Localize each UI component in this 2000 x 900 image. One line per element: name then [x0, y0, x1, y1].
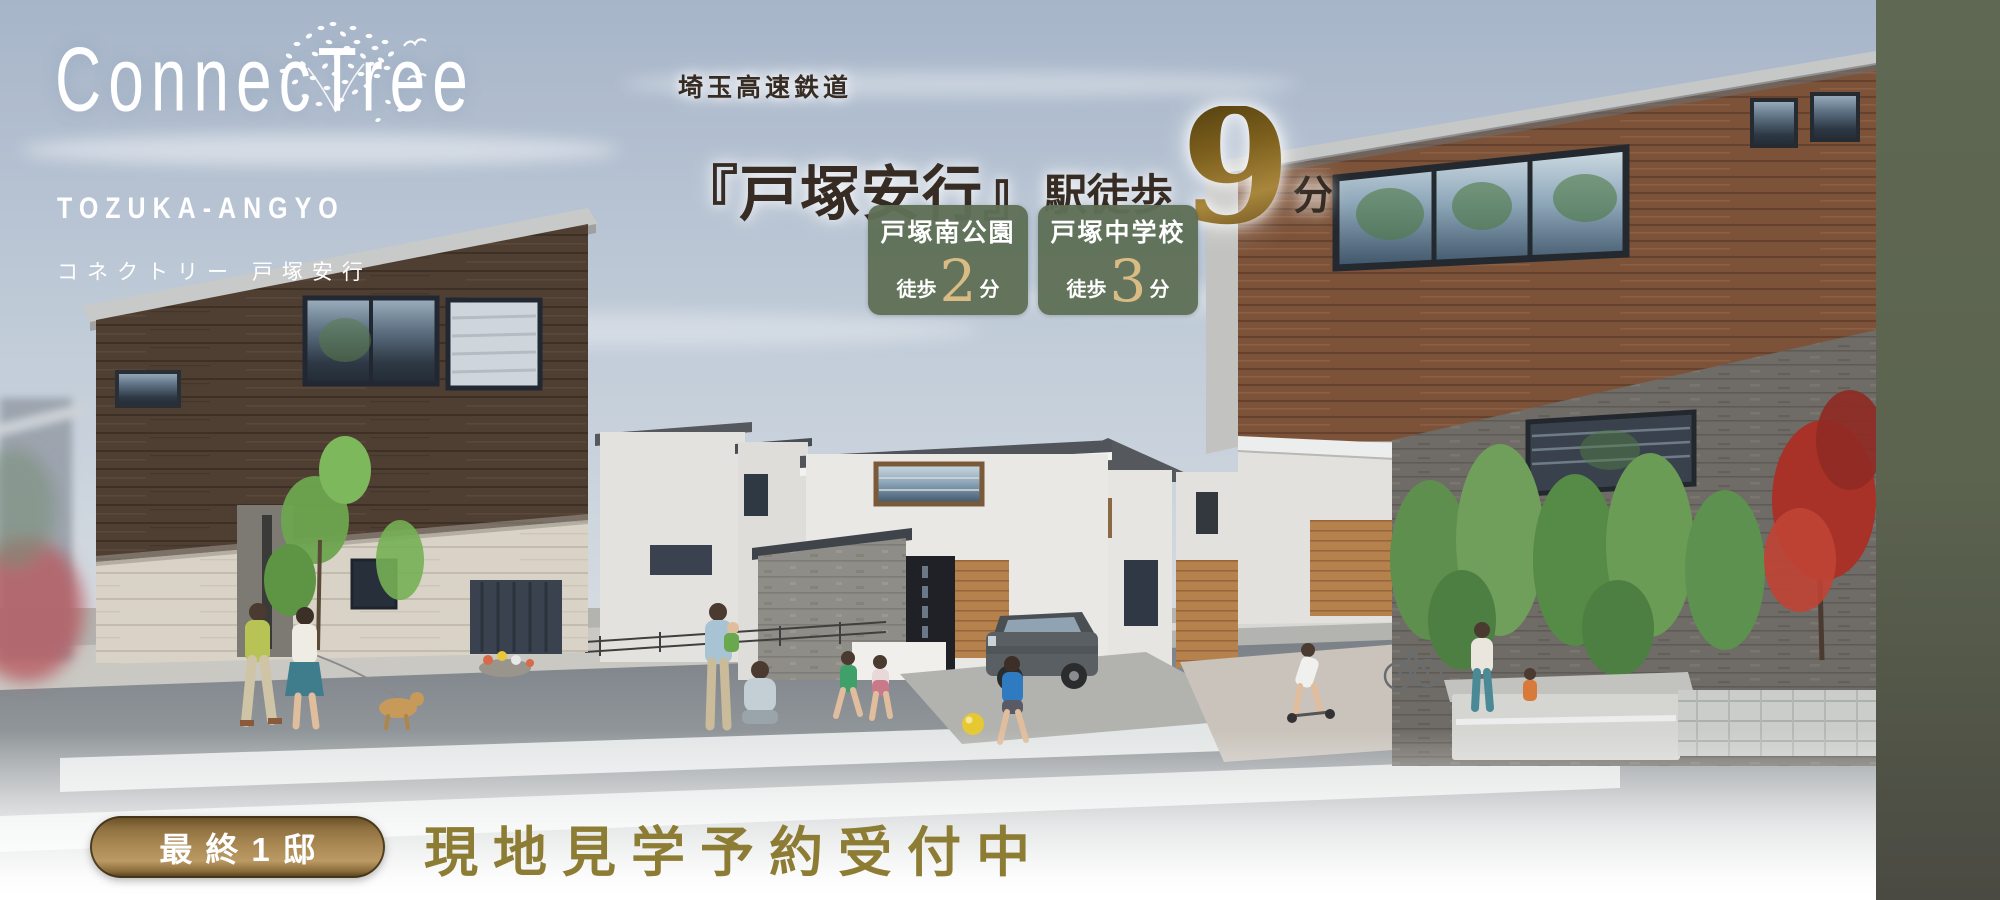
- hero-banner: ConnecTree: [0, 0, 2000, 900]
- logo-kana: コネクトリー 戸塚安行: [57, 256, 372, 286]
- logo-wordmark: ConnecTree: [55, 34, 475, 125]
- logo-romaji: TOZUKA-ANGYO: [57, 192, 345, 226]
- poi-name: 戸塚中学校: [1050, 213, 1185, 249]
- poi-badges: 戸塚南公園 徒歩 2 分 戸塚中学校 徒歩 3 分: [868, 205, 1198, 315]
- walk-minutes-unit: 分: [1293, 163, 1333, 229]
- brand-logo: ConnecTree: [55, 34, 475, 98]
- poi-name: 戸塚南公園: [880, 213, 1015, 249]
- poi-badge-school: 戸塚中学校 徒歩 3 分: [1038, 205, 1198, 315]
- cta-message: 現地見学予約受付中: [424, 808, 1045, 887]
- poi-walk-time: 徒歩 2 分: [897, 252, 1000, 310]
- availability-badge: 最終1邸: [90, 816, 385, 878]
- poi-badge-park: 戸塚南公園 徒歩 2 分: [868, 205, 1028, 315]
- footer-band: 最終1邸 現地見学予約受付中: [0, 798, 1876, 900]
- poi-walk-time: 徒歩 3 分: [1067, 252, 1170, 310]
- side-accent-bar: [1876, 0, 2000, 900]
